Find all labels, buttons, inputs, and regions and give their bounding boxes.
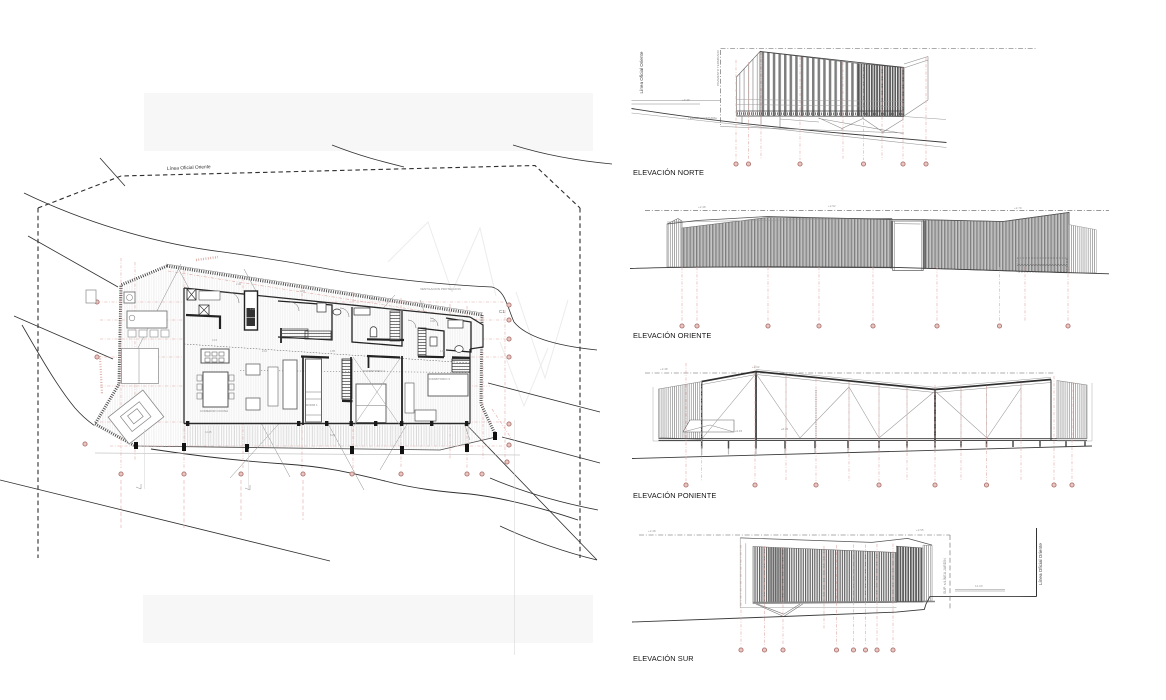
svg-text:DORMITORIO 2: DORMITORIO 2 [363, 369, 385, 373]
svg-text:+2.62: +2.62 [752, 365, 760, 369]
svg-text:+0.40: +0.40 [682, 98, 690, 102]
svg-text:12.45: 12.45 [205, 430, 212, 434]
svg-text:+2.52: +2.52 [828, 204, 836, 208]
svg-text:ELEVACIÓN SUR: ELEVACIÓN SUR [633, 654, 694, 663]
svg-text:4.15: 4.15 [212, 338, 218, 342]
svg-text:+2.70: +2.70 [1014, 206, 1022, 210]
svg-text:2.80: 2.80 [370, 297, 376, 301]
svg-text:C1: C1 [499, 309, 505, 314]
svg-text:0.90: 0.90 [430, 319, 436, 323]
svg-text:+0.15: +0.15 [735, 429, 743, 433]
svg-text:+0.15: +0.15 [781, 427, 789, 431]
svg-text:12.00: 12.00 [975, 584, 983, 588]
svg-text:Línea Oficial Oriente: Línea Oficial Oriente [639, 51, 644, 93]
svg-text:+2.48: +2.48 [698, 205, 706, 209]
svg-text:3.65: 3.65 [300, 289, 306, 293]
svg-text:+2.48: +2.48 [648, 529, 656, 533]
svg-text:SUP. s/LÍNEA JARDÍN: SUP. s/LÍNEA JARDÍN [943, 558, 947, 594]
svg-text:COMEDOR COCINA: COMEDOR COCINA [200, 409, 228, 413]
svg-text:Línea Oficial Oriente: Línea Oficial Oriente [1038, 543, 1043, 585]
svg-text:DORM 1: DORM 1 [306, 403, 318, 407]
svg-text:VENTILACION PROTECCION: VENTILACION PROTECCION [420, 287, 461, 291]
svg-text:DORMITORIO 3: DORMITORIO 3 [428, 377, 450, 381]
svg-text:2.40: 2.40 [236, 282, 242, 286]
svg-text:ELEVACIÓN ORIENTE: ELEVACIÓN ORIENTE [633, 331, 711, 340]
svg-text:1.10: 1.10 [440, 349, 446, 353]
svg-text:+2.55: +2.55 [916, 528, 924, 532]
svg-text:+2.48: +2.48 [660, 367, 668, 371]
svg-text:2.10: 2.10 [262, 349, 268, 353]
svg-text:ELEVACIÓN NORTE: ELEVACIÓN NORTE [633, 168, 704, 177]
svg-text:PAVIMENTO TERMINADO: PAVIMENTO TERMINADO [716, 49, 720, 86]
svg-text:1.20: 1.20 [250, 307, 256, 311]
svg-text:TERRENO NATURAL: TERRENO NATURAL [688, 116, 718, 120]
svg-text:8.20: 8.20 [330, 433, 336, 437]
svg-text:1.85: 1.85 [330, 349, 336, 353]
svg-text:ELEVACIÓN PONIENTE: ELEVACIÓN PONIENTE [633, 491, 716, 500]
